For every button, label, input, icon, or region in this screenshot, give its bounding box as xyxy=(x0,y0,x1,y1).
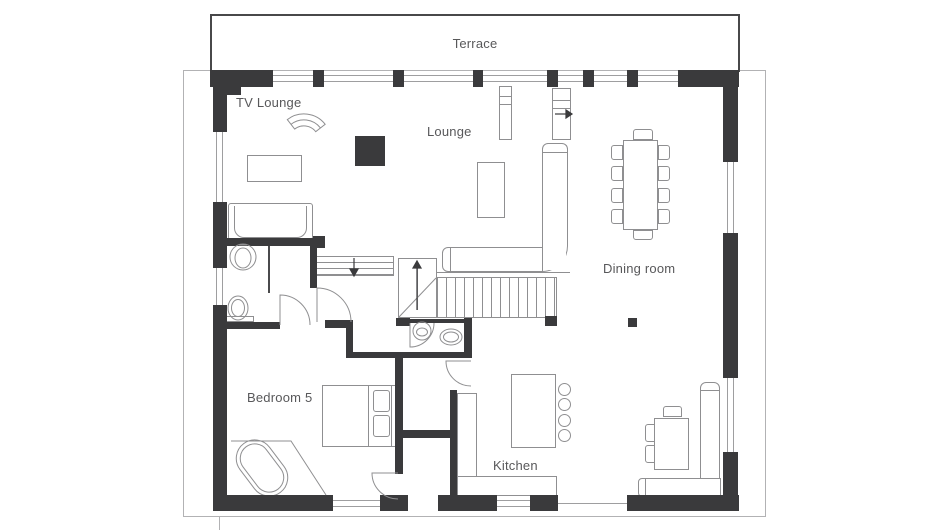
coffee-table xyxy=(247,155,302,182)
window xyxy=(324,81,393,82)
dining-chair xyxy=(611,188,623,203)
dining-chair xyxy=(658,188,670,203)
sofa-armrest xyxy=(645,479,646,496)
dining-chair xyxy=(658,166,670,181)
window xyxy=(638,81,678,82)
wall-pier xyxy=(313,70,324,87)
window xyxy=(497,506,530,507)
sofa-seam xyxy=(701,479,718,495)
window xyxy=(404,81,473,82)
bar-stool xyxy=(558,383,571,396)
wc-wall xyxy=(352,352,472,358)
window xyxy=(222,268,223,305)
wall xyxy=(723,72,738,162)
window xyxy=(216,268,217,305)
terrace-steps xyxy=(552,88,571,140)
wall-pier xyxy=(627,70,638,87)
interior-wall xyxy=(450,390,457,496)
wall xyxy=(438,495,497,511)
window xyxy=(404,75,473,76)
terrace-door xyxy=(558,81,583,82)
room-label-lounge: Lounge xyxy=(427,124,472,139)
kitchen-island xyxy=(511,374,556,448)
room-label-tv-lounge: TV Lounge xyxy=(236,95,301,110)
step-line xyxy=(553,100,570,101)
dining-chair xyxy=(658,209,670,224)
window xyxy=(324,75,393,76)
window xyxy=(497,500,530,501)
wall-pier xyxy=(530,495,558,511)
room-label-dining-room: Dining room xyxy=(603,261,675,276)
column xyxy=(628,318,637,327)
dining-chair xyxy=(611,166,623,181)
step-line xyxy=(500,96,511,97)
stair-line xyxy=(417,264,418,310)
sofa-cushion xyxy=(234,206,307,238)
interior-wall xyxy=(213,322,280,329)
wall-pier xyxy=(583,70,594,87)
terrace-door xyxy=(558,75,583,76)
window xyxy=(272,75,313,76)
nook-chair xyxy=(663,406,682,417)
pillow xyxy=(373,415,390,437)
terrace-steps xyxy=(499,86,512,140)
floor-plan: Terrace xyxy=(0,0,941,530)
bar-stool xyxy=(558,429,571,442)
interior-wall xyxy=(398,430,452,438)
lounge-table xyxy=(477,162,505,218)
window xyxy=(272,81,313,82)
room-label-bedroom-5: Bedroom 5 xyxy=(247,390,312,405)
kitchen-counter xyxy=(457,476,557,496)
wall-pier xyxy=(393,70,404,87)
interior-wall xyxy=(213,238,325,246)
boundary-tick xyxy=(219,517,220,530)
window xyxy=(333,506,380,507)
window xyxy=(727,162,728,233)
wall-pier xyxy=(473,70,483,87)
nook-table xyxy=(654,418,689,470)
window xyxy=(733,378,734,452)
nook-chair xyxy=(645,424,655,442)
wall-pier xyxy=(547,70,558,87)
window xyxy=(222,132,223,202)
bath-divider xyxy=(268,245,270,293)
window xyxy=(594,81,627,82)
window xyxy=(216,132,217,202)
terrace-label: Terrace xyxy=(210,36,740,51)
wall xyxy=(213,305,227,510)
sofa-armrest xyxy=(450,248,451,271)
window xyxy=(483,75,547,76)
wall xyxy=(213,70,227,132)
bar-stool xyxy=(558,398,571,411)
sofa-seam xyxy=(543,248,566,270)
step-line xyxy=(553,108,570,109)
stair-run-lower xyxy=(316,256,394,276)
room-label-kitchen: Kitchen xyxy=(493,458,538,473)
wc-wall xyxy=(410,319,472,323)
wall xyxy=(213,495,333,511)
dining-table xyxy=(623,140,658,230)
bed-line xyxy=(368,386,369,446)
stair-post xyxy=(545,316,557,326)
floor-line xyxy=(437,272,570,273)
dining-chair xyxy=(611,145,623,160)
step-line xyxy=(500,104,511,105)
dining-chair xyxy=(658,145,670,160)
window xyxy=(333,500,380,501)
interior-wall xyxy=(395,358,403,474)
window xyxy=(727,378,728,452)
pillow xyxy=(373,390,390,412)
sofa-armrest xyxy=(701,390,719,391)
window xyxy=(594,75,627,76)
window xyxy=(483,81,547,82)
fireplace xyxy=(355,136,385,166)
bar-stool xyxy=(558,414,571,427)
nook-chair xyxy=(645,445,655,463)
window xyxy=(733,162,734,233)
dining-chair xyxy=(633,230,653,240)
wall-pier xyxy=(380,495,408,511)
headboard xyxy=(391,386,392,446)
wall xyxy=(723,233,738,378)
interior-wall xyxy=(396,318,410,326)
wall xyxy=(627,495,739,511)
interior-wall xyxy=(310,246,317,288)
patio-door xyxy=(558,503,627,504)
window xyxy=(638,75,678,76)
stair-treads xyxy=(437,277,557,318)
dining-chair xyxy=(633,129,653,140)
dining-chair xyxy=(611,209,623,224)
wall xyxy=(213,202,227,268)
corner-sofa xyxy=(442,247,543,272)
kitchen-counter xyxy=(457,393,477,478)
sofa-armrest xyxy=(543,152,567,153)
